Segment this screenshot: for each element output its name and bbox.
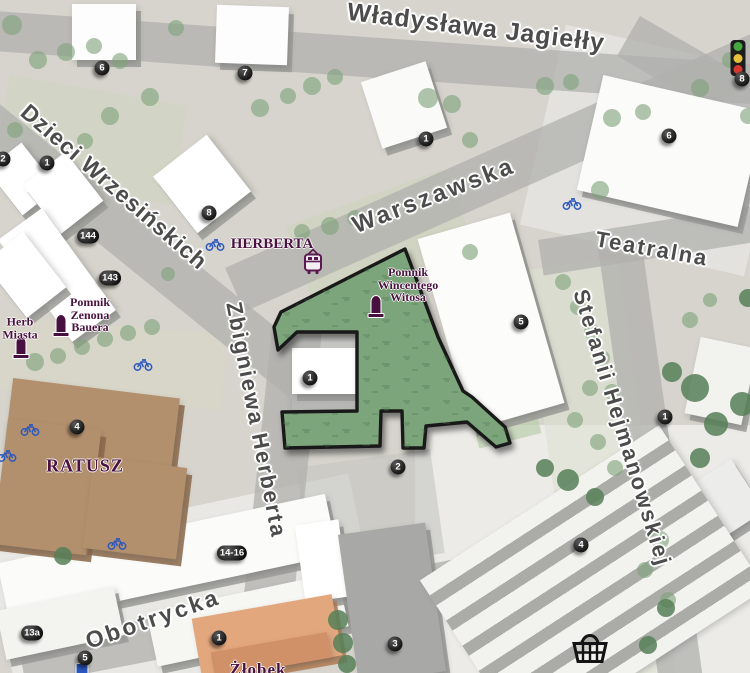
tree [54, 547, 72, 565]
traffic-light-middle-lamp [734, 54, 743, 63]
tree [2, 15, 22, 35]
tree [703, 293, 717, 307]
bike-parking-icon[interactable] [133, 358, 153, 377]
map-badge[interactable]: 5 [78, 651, 93, 666]
map-badge[interactable]: 1 [40, 156, 55, 171]
poi-label-line: Miasta [2, 328, 37, 341]
tree [739, 289, 750, 307]
bike-parking-icon[interactable] [20, 423, 40, 442]
tree [704, 412, 728, 436]
map-canvas[interactable]: Władysława JagiełłyDzieci WrzesińskichWa… [0, 0, 750, 673]
tree [120, 325, 136, 341]
poi-label[interactable]: Żłobek [229, 661, 286, 673]
map-badge[interactable]: 8 [735, 72, 750, 87]
traffic-light-icon[interactable] [731, 40, 746, 76]
tree [112, 53, 128, 69]
poi-label-line: Pomnik [378, 266, 438, 279]
tree [443, 95, 461, 113]
tree [86, 38, 102, 54]
tree [418, 88, 438, 108]
tree [682, 312, 698, 328]
tree [303, 77, 321, 95]
bike-parking-icon[interactable] [0, 449, 17, 468]
poi-label[interactable]: RATUSZ [46, 457, 124, 476]
tree [730, 392, 750, 416]
map-badge[interactable]: 6 [95, 61, 110, 76]
tree [635, 104, 651, 120]
map-badge[interactable]: 1 [303, 371, 318, 386]
poi-label-line: Bauera [70, 321, 110, 334]
trees-layer [0, 0, 750, 673]
map-badge[interactable]: 4 [70, 420, 85, 435]
tree [462, 132, 478, 148]
tree [555, 274, 571, 290]
shopping-basket-icon[interactable] [570, 631, 610, 670]
tree [462, 244, 478, 260]
bike-parking-icon[interactable] [107, 537, 127, 556]
tree [567, 412, 583, 428]
tree [328, 610, 348, 630]
poi-label-line: Pomnik [70, 296, 110, 309]
map-badge[interactable]: 1 [212, 631, 227, 646]
tree [168, 20, 184, 36]
bike-parking-icon[interactable] [562, 197, 582, 216]
tree [251, 99, 269, 117]
tree [536, 77, 554, 95]
poi-label-line: RATUSZ [46, 457, 124, 476]
map-badge[interactable]: 14-16 [217, 546, 247, 561]
poi-label-line: Herb [2, 315, 37, 328]
tree [327, 69, 343, 85]
tree [591, 181, 609, 199]
tree [536, 459, 554, 477]
poi-label-line: Żłobek [229, 661, 286, 673]
tree [681, 374, 709, 402]
tree [101, 107, 119, 125]
poi-label[interactable]: PomnikWincentegoWitosa [378, 266, 438, 304]
map-badge[interactable]: 13a [21, 626, 43, 641]
tree [557, 469, 579, 491]
poi-label[interactable]: PomnikZenonaBauera [70, 296, 110, 334]
tree [280, 88, 296, 104]
map-badge[interactable]: 2 [391, 460, 406, 475]
tree [563, 74, 579, 90]
map-badge[interactable]: 6 [662, 129, 677, 144]
tree [657, 599, 675, 617]
tram-stop-icon[interactable] [300, 248, 326, 281]
tree [141, 88, 159, 106]
traffic-light-top-lamp [734, 42, 743, 51]
tree [29, 51, 47, 69]
map-badge[interactable]: 3 [388, 637, 403, 652]
tree [662, 362, 682, 382]
tree [590, 434, 606, 450]
monument-icon[interactable] [51, 313, 71, 344]
map-badge[interactable]: 5 [514, 315, 529, 330]
tree [586, 488, 604, 506]
tree [74, 339, 90, 355]
tree [50, 348, 66, 364]
tree [338, 655, 356, 673]
tree [321, 217, 339, 235]
map-badge[interactable]: 1 [658, 410, 673, 425]
map-badge[interactable]: 4 [574, 538, 589, 553]
tree [639, 636, 657, 654]
map-badge[interactable]: 144 [77, 229, 99, 244]
tree [161, 267, 175, 281]
tree [690, 448, 710, 468]
tree [740, 108, 750, 124]
tree [691, 79, 709, 97]
tree [333, 633, 353, 653]
tree [57, 43, 75, 61]
map-badge[interactable]: 8 [202, 206, 217, 221]
poi-label[interactable]: HerbMiasta [2, 315, 37, 340]
map-badge[interactable]: 1 [419, 132, 434, 147]
poi-label-line: Witosa [378, 291, 438, 304]
tree [603, 109, 621, 127]
map-badge[interactable]: 7 [238, 66, 253, 81]
tree [144, 319, 160, 335]
map-badge[interactable]: 143 [99, 271, 121, 286]
